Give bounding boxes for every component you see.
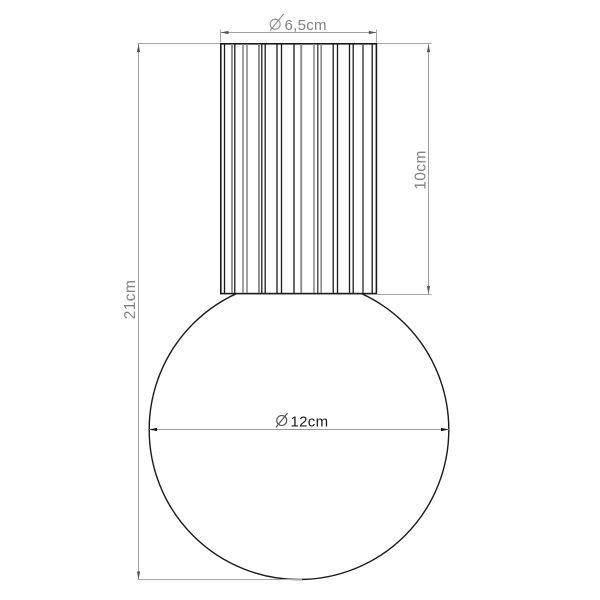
svg-text:21cm: 21cm — [122, 280, 139, 320]
svg-text:12cm: 12cm — [291, 413, 329, 430]
svg-text:6,5cm: 6,5cm — [285, 17, 327, 34]
svg-text:10cm: 10cm — [413, 150, 430, 190]
